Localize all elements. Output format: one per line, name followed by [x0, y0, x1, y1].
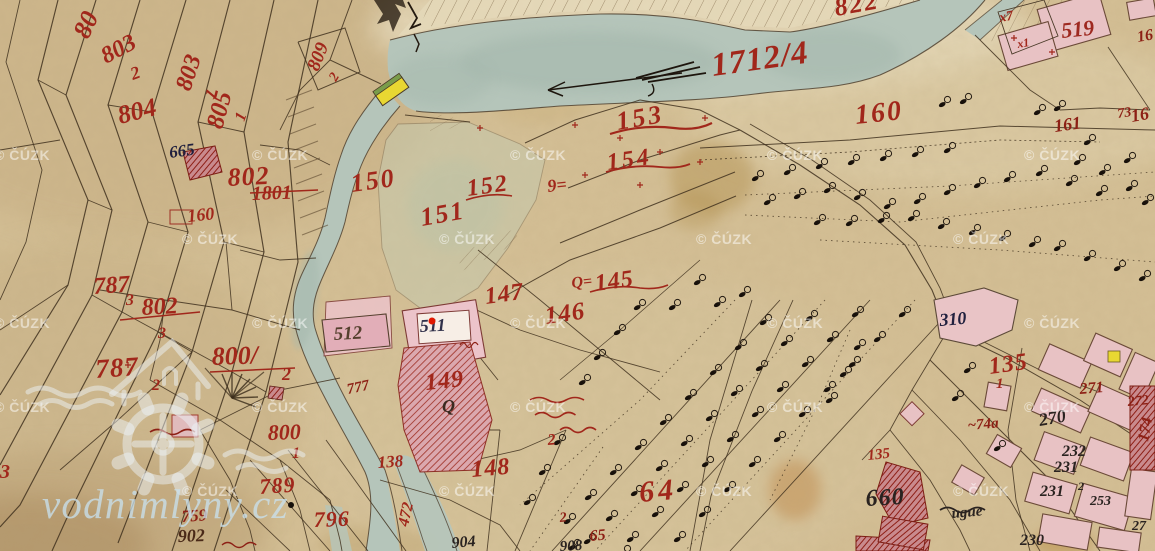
svg-text:800/: 800/ [211, 340, 261, 371]
svg-text:© ČÚZK: © ČÚZK [510, 398, 566, 415]
svg-text:519: 519 [1060, 15, 1095, 43]
svg-text:© ČÚZK: © ČÚZK [0, 314, 50, 331]
svg-text:908: 908 [559, 538, 583, 551]
svg-text:231: 231 [1053, 459, 1078, 476]
svg-text:2: 2 [558, 510, 567, 526]
svg-text:2: 2 [546, 431, 556, 449]
svg-text:160: 160 [186, 203, 215, 226]
svg-text:~74a: ~74a [967, 415, 1000, 434]
svg-text:© ČÚZK: © ČÚZK [767, 314, 823, 331]
svg-text:800: 800 [267, 419, 301, 445]
svg-text:© ČÚZK: © ČÚZK [182, 230, 238, 247]
svg-text:2: 2 [281, 364, 291, 384]
svg-text:904: 904 [451, 533, 476, 551]
svg-text:160: 160 [853, 95, 904, 131]
svg-text:© ČÚZK: © ČÚZK [953, 230, 1009, 247]
svg-text:147: 147 [483, 279, 525, 310]
svg-text:135: 135 [987, 349, 1029, 380]
svg-text:© ČÚZK: © ČÚZK [510, 146, 566, 163]
svg-text:© ČÚZK: © ČÚZK [696, 482, 752, 499]
svg-text:vodnimlyny.cz: vodnimlyny.cz [42, 481, 289, 527]
svg-text:310: 310 [938, 308, 968, 330]
svg-text:3: 3 [0, 461, 10, 483]
svg-text:Q: Q [442, 396, 455, 416]
svg-text:© ČÚZK: © ČÚZK [1024, 314, 1080, 331]
svg-text:3: 3 [125, 292, 135, 309]
svg-text:272: 272 [1126, 393, 1149, 410]
svg-text:230: 230 [1019, 532, 1044, 549]
svg-text:665: 665 [168, 140, 196, 162]
svg-text:© ČÚZK: © ČÚZK [252, 146, 308, 163]
svg-text:2: 2 [151, 377, 160, 394]
svg-text:© ČÚZK: © ČÚZK [953, 482, 1009, 499]
svg-text:65: 65 [589, 527, 606, 545]
svg-text:9=: 9= [546, 174, 567, 196]
svg-text:231: 231 [1039, 483, 1064, 500]
svg-text:148: 148 [470, 454, 511, 483]
svg-text:© ČÚZK: © ČÚZK [696, 230, 752, 247]
svg-text:174: 174 [1135, 416, 1155, 443]
svg-text:150: 150 [349, 163, 398, 198]
svg-text:271: 271 [1078, 379, 1104, 398]
svg-text:© ČÚZK: © ČÚZK [510, 314, 566, 331]
svg-text:27: 27 [1131, 519, 1147, 534]
svg-text:© ČÚZK: © ČÚZK [767, 398, 823, 415]
svg-text:512: 512 [333, 323, 363, 345]
svg-text:253: 253 [1089, 494, 1111, 509]
svg-text:ugue: ugue [951, 503, 983, 522]
svg-text:145: 145 [593, 266, 635, 297]
svg-text:© ČÚZK: © ČÚZK [252, 398, 308, 415]
svg-text:2: 2 [1077, 479, 1084, 493]
svg-text:796: 796 [313, 506, 350, 532]
svg-text:1: 1 [996, 376, 1004, 392]
svg-text:902: 902 [177, 525, 205, 546]
svg-text:© ČÚZK: © ČÚZK [1024, 398, 1080, 415]
svg-text:64: 64 [638, 473, 679, 509]
svg-text:135: 135 [867, 446, 892, 464]
svg-text:3: 3 [157, 325, 166, 342]
svg-text:© ČÚZK: © ČÚZK [439, 482, 495, 499]
svg-text:232: 232 [1061, 443, 1086, 460]
svg-text:660: 660 [865, 484, 905, 512]
svg-text:138: 138 [377, 451, 404, 472]
svg-text:© ČÚZK: © ČÚZK [1024, 146, 1080, 163]
svg-text:© ČÚZK: © ČÚZK [767, 146, 823, 163]
svg-text:16: 16 [1136, 26, 1155, 46]
svg-text:© ČÚZK: © ČÚZK [0, 146, 50, 163]
svg-text:© ČÚZK: © ČÚZK [439, 230, 495, 247]
svg-text:16: 16 [1129, 103, 1150, 126]
svg-text:Q=: Q= [571, 273, 593, 292]
svg-text:149: 149 [424, 366, 466, 396]
svg-text:161: 161 [1053, 112, 1083, 136]
svg-text:© ČÚZK: © ČÚZK [252, 314, 308, 331]
svg-text:x1: x1 [1015, 35, 1030, 51]
svg-text:73: 73 [1116, 105, 1132, 122]
